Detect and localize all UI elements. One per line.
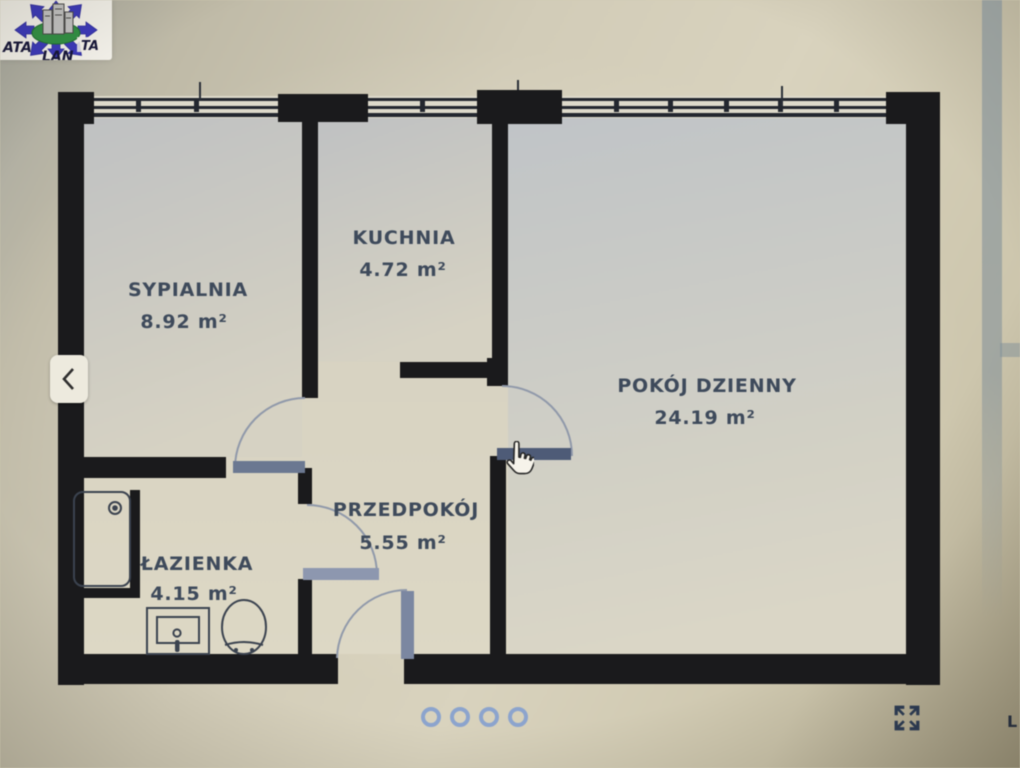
room-label-kuchnia: KUCHNIA — [353, 227, 456, 249]
carousel-pagination — [421, 707, 528, 727]
clipped-edge-text: L — [1007, 712, 1020, 732]
carousel-dot-4[interactable] — [508, 707, 528, 727]
room-label-sypialnia: SYPIALNIA — [128, 279, 248, 301]
mouse-cursor-hand — [502, 441, 534, 487]
carousel-dot-2[interactable] — [450, 707, 470, 727]
room-label-lazienka: ŁAZIENKA — [140, 553, 253, 575]
chevron-left-icon — [59, 364, 79, 394]
room-area-sypialnia: 8.92 m² — [140, 311, 227, 333]
room-label-przedpokoj: PRZEDPOKÓJ — [333, 497, 479, 521]
room-area-przedpokoj: 5.55 m² — [359, 532, 446, 554]
photo-background: SYPIALNIA 8.92 m² KUCHNIA 4.72 m² POKÓJ … — [0, 0, 1020, 768]
carousel-dot-1[interactable] — [421, 707, 441, 727]
fullscreen-expand-icon — [889, 700, 925, 736]
floorplan-image[interactable]: SYPIALNIA 8.92 m² KUCHNIA 4.72 m² POKÓJ … — [0, 0, 1020, 768]
carousel-dot-3[interactable] — [479, 707, 499, 727]
room-area-pokoj-dzienny: 24.19 m² — [654, 407, 755, 429]
room-area-kuchnia: 4.72 m² — [359, 259, 446, 281]
room-label-pokoj-dzienny: POKÓJ DZIENNY — [617, 373, 796, 397]
carousel-prev-button[interactable] — [50, 355, 88, 403]
room-area-lazienka: 4.15 m² — [150, 583, 237, 605]
fullscreen-button[interactable] — [889, 700, 925, 736]
